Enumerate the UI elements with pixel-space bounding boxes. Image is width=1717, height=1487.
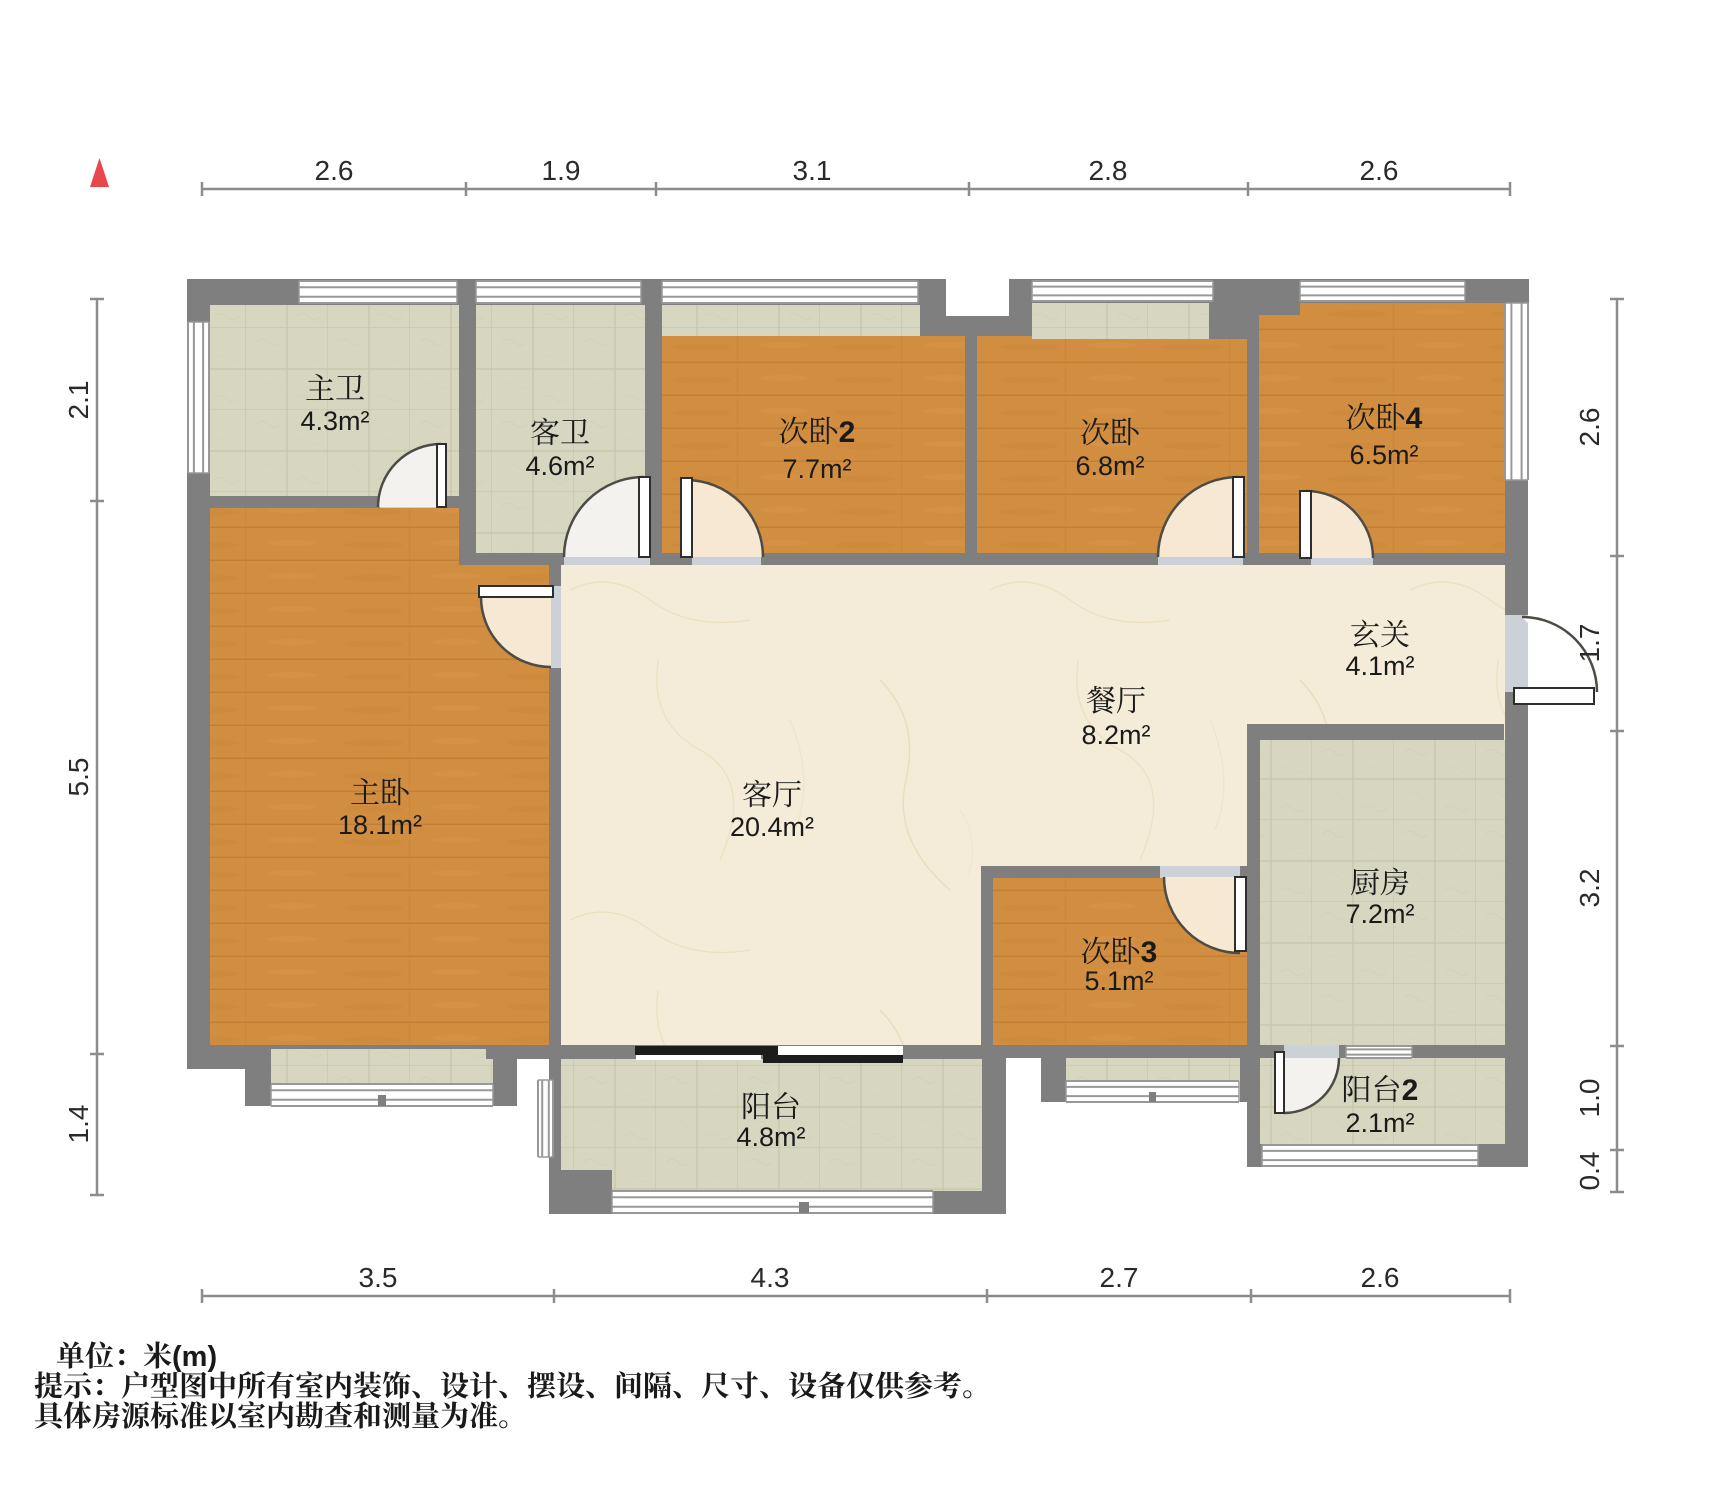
svg-text:2: 2 — [1402, 1074, 1419, 1107]
svg-text:18.1m²: 18.1m² — [338, 810, 422, 840]
svg-text:6.8m²: 6.8m² — [1075, 451, 1144, 481]
svg-text:4: 4 — [1406, 402, 1423, 435]
svg-text:2.1m²: 2.1m² — [1345, 1108, 1414, 1138]
svg-text:4.6m²: 4.6m² — [525, 451, 594, 481]
svg-text:4.1m²: 4.1m² — [1345, 651, 1414, 681]
svg-text:3.5: 3.5 — [359, 1262, 398, 1293]
svg-text:7.7m²: 7.7m² — [782, 454, 851, 484]
svg-text:3: 3 — [1141, 936, 1158, 969]
svg-text:2.1: 2.1 — [63, 381, 94, 420]
svg-text:1.7: 1.7 — [1574, 624, 1605, 663]
svg-text:8.2m²: 8.2m² — [1081, 720, 1150, 750]
svg-text:5.1m²: 5.1m² — [1084, 966, 1153, 996]
svg-text:3.1: 3.1 — [793, 155, 832, 186]
svg-text:6.5m²: 6.5m² — [1349, 440, 1418, 470]
svg-text:4.8m²: 4.8m² — [736, 1122, 805, 1152]
svg-text:1.0: 1.0 — [1574, 1079, 1605, 1118]
svg-text:1.9: 1.9 — [542, 155, 581, 186]
svg-text:5.5: 5.5 — [63, 758, 94, 797]
svg-text:4.3m²: 4.3m² — [300, 406, 369, 436]
svg-text:0.4: 0.4 — [1574, 1152, 1605, 1191]
svg-text:20.4m²: 20.4m² — [730, 812, 814, 842]
svg-text:2.7: 2.7 — [1100, 1262, 1139, 1293]
svg-text:2.6: 2.6 — [1361, 1262, 1400, 1293]
svg-text:2.6: 2.6 — [1360, 155, 1399, 186]
svg-text:2: 2 — [839, 416, 856, 449]
svg-text:4.3: 4.3 — [751, 1262, 790, 1293]
svg-text:(m): (m) — [172, 1341, 217, 1373]
svg-text:1.4: 1.4 — [63, 1105, 94, 1144]
svg-text:2.8: 2.8 — [1089, 155, 1128, 186]
svg-text:2.6: 2.6 — [315, 155, 354, 186]
svg-text:3.2: 3.2 — [1574, 869, 1605, 908]
svg-text:7.2m²: 7.2m² — [1345, 899, 1414, 929]
svg-text:2.6: 2.6 — [1574, 408, 1605, 447]
